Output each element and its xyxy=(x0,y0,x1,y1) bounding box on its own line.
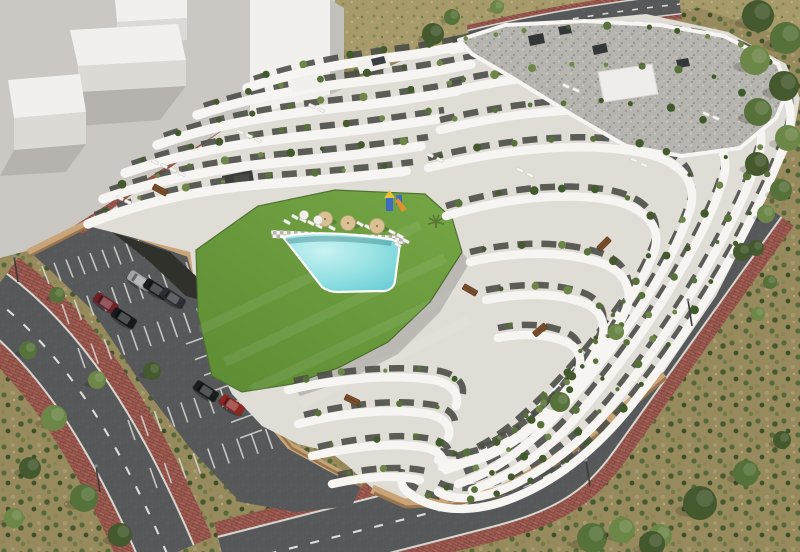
balcony-shrub xyxy=(545,434,552,441)
balcony-shrub xyxy=(287,103,292,108)
balcony-shrub xyxy=(425,108,432,115)
balcony-shrub xyxy=(383,369,387,373)
balcony-shrub xyxy=(521,28,526,33)
massing-block-b-face xyxy=(14,112,86,150)
balcony-shrub xyxy=(407,86,414,93)
balcony-shrub xyxy=(380,46,387,53)
balcony-shrub xyxy=(425,493,431,499)
balcony-shrub xyxy=(188,144,194,150)
balcony-shrub xyxy=(137,196,141,200)
balcony-shrub xyxy=(482,247,487,252)
balcony-shrub xyxy=(662,252,670,260)
balcony-shrub xyxy=(646,312,653,319)
balcony-shrub xyxy=(358,141,365,148)
balcony-shrub xyxy=(342,168,346,172)
balcony-shrub xyxy=(461,77,466,82)
balcony-shrub xyxy=(537,421,544,428)
balcony-shrub xyxy=(561,100,567,106)
balcony-shrub xyxy=(287,149,295,157)
balcony-shrub xyxy=(584,248,591,255)
balcony-shrub xyxy=(598,98,603,103)
balcony-shrub xyxy=(346,51,354,59)
balcony-shrub xyxy=(265,172,272,179)
balcony-shrub xyxy=(597,409,601,413)
aerial-render xyxy=(0,0,800,552)
balcony-shrub xyxy=(572,406,580,414)
balcony-shrub xyxy=(590,136,596,142)
balcony-shrub xyxy=(379,115,385,121)
balcony-shrub xyxy=(596,302,603,309)
balcony-shrub xyxy=(396,400,403,407)
balcony-shrub xyxy=(604,62,609,67)
balcony-shrub xyxy=(708,279,713,284)
balcony-shrub xyxy=(463,449,471,457)
balcony-shrub xyxy=(564,379,570,385)
balcony-shrub xyxy=(155,173,160,178)
balcony-shrub xyxy=(329,443,333,447)
balcony-shrub xyxy=(258,152,264,158)
balcony-shrub xyxy=(634,360,642,368)
balcony-shrub xyxy=(528,102,533,107)
balcony-shrub xyxy=(591,185,599,193)
balcony-shrub xyxy=(539,455,547,463)
balcony-shrub xyxy=(672,310,677,315)
balcony-shrub xyxy=(315,410,322,417)
balcony-shrub xyxy=(140,157,145,162)
balcony-shrub xyxy=(619,404,627,412)
balcony-shrub xyxy=(221,179,225,183)
balcony-shrub xyxy=(262,71,269,78)
balcony-shrub xyxy=(187,163,192,168)
balcony-shrub xyxy=(558,185,566,193)
balcony-shrub xyxy=(679,216,685,222)
balcony-shrub xyxy=(311,169,319,177)
balcony-shrub xyxy=(569,62,574,67)
balcony-shrub xyxy=(182,183,190,191)
balcony-shrub xyxy=(527,478,533,484)
balcony-shrub xyxy=(674,28,680,34)
balcony-shrub xyxy=(452,116,458,122)
balcony-shrub xyxy=(245,88,252,95)
balcony-shrub xyxy=(632,278,640,286)
balcony-shrub xyxy=(523,413,528,418)
balcony-shrub xyxy=(473,144,481,152)
balcony-shrub xyxy=(520,452,528,460)
balcony-shrub xyxy=(249,110,255,116)
balcony-shrub xyxy=(646,253,651,258)
balcony-shrub xyxy=(492,107,498,113)
white-parasol xyxy=(300,211,309,220)
balcony-shrub xyxy=(738,41,744,47)
balcony-shrub xyxy=(417,366,422,371)
balcony-shrub xyxy=(221,156,229,164)
balcony-shrub xyxy=(467,496,475,504)
balcony-shrub xyxy=(535,405,542,412)
balcony-shrub xyxy=(413,433,419,439)
balcony-shrub xyxy=(506,447,511,452)
balcony-shrub xyxy=(452,376,458,382)
balcony-shrub xyxy=(518,242,525,249)
balcony-shrub xyxy=(687,173,691,177)
balcony-shrub xyxy=(609,256,618,265)
balcony-shrub xyxy=(705,34,710,39)
balcony-shrub xyxy=(489,470,495,476)
balcony-shrub xyxy=(508,323,513,328)
balcony-shrub xyxy=(363,69,371,77)
balcony-shrub xyxy=(691,278,697,284)
balcony-shrub xyxy=(638,292,645,299)
balcony-shrub xyxy=(447,80,452,85)
balcony-shrub xyxy=(667,104,675,112)
balcony-shrub xyxy=(621,299,625,303)
balcony-shrub xyxy=(382,163,388,169)
balcony-shrub xyxy=(317,76,324,83)
balcony-shrub xyxy=(699,116,707,124)
balcony-shrub xyxy=(670,273,678,281)
balcony-shrub xyxy=(493,439,500,446)
balcony-shrub xyxy=(401,64,406,69)
balcony-shrub xyxy=(496,190,502,196)
balcony-shrub xyxy=(649,336,656,343)
balcony-shrub xyxy=(435,405,439,409)
balcony-shrub xyxy=(299,60,307,68)
balcony-shrub xyxy=(279,127,285,133)
balcony-shrub xyxy=(214,99,220,105)
balcony-shrub xyxy=(532,282,540,290)
balcony-shrub xyxy=(444,484,450,490)
balcony-shrub xyxy=(216,117,221,122)
balcony-shrub xyxy=(493,490,499,496)
balcony-shrub xyxy=(712,74,717,79)
balcony-shrub xyxy=(437,60,443,66)
balcony-shrub xyxy=(565,459,569,463)
balcony-shrub xyxy=(584,440,590,446)
balcony-shrub xyxy=(497,435,501,439)
balcony-shrub xyxy=(317,96,324,103)
balcony-shrub xyxy=(463,36,468,41)
balcony-shrub xyxy=(215,138,223,146)
balcony-shrub xyxy=(399,137,407,145)
balcony-shrub xyxy=(175,130,181,136)
balcony-shrub xyxy=(511,427,517,433)
balcony-shrub xyxy=(511,140,518,147)
balcony-shrub xyxy=(498,286,503,291)
balcony-shrub xyxy=(473,465,479,471)
balcony-shrub xyxy=(738,89,746,97)
balcony-shrub xyxy=(611,313,616,318)
balcony-shrub xyxy=(320,146,325,151)
balcony-shrub xyxy=(628,101,633,106)
balcony-shrub xyxy=(528,64,536,72)
balcony-shrub xyxy=(490,70,499,79)
white-parasol xyxy=(314,216,323,225)
balcony-shrub xyxy=(530,186,539,195)
balcony-shrub xyxy=(566,386,573,393)
balcony-shrub xyxy=(373,436,380,443)
balcony-shrub xyxy=(623,339,630,346)
balcony-shrub xyxy=(690,306,699,315)
balcony-shrub xyxy=(343,120,350,127)
balcony-shrub xyxy=(748,211,752,215)
balcony-shrub xyxy=(548,137,554,143)
balcony-shrub xyxy=(508,473,515,480)
balcony-shrub xyxy=(359,93,367,101)
balcony-shrub xyxy=(346,470,351,475)
massing-block-a xyxy=(70,24,186,66)
balcony-shrub xyxy=(600,376,604,380)
massing-block-b xyxy=(8,74,86,118)
balcony-shrub xyxy=(563,286,572,295)
balcony-shrub xyxy=(757,144,763,150)
balcony-shrub xyxy=(593,358,599,364)
balcony-shrub xyxy=(303,376,310,383)
render-viewport xyxy=(0,0,800,552)
balcony-shrub xyxy=(635,139,643,147)
balcony-shrub xyxy=(471,486,478,493)
balcony-shrub xyxy=(118,180,127,189)
balcony-shrub xyxy=(578,349,582,353)
balcony-shrub xyxy=(103,207,108,212)
balcony-shrub xyxy=(647,25,652,30)
balcony-shrub xyxy=(715,240,719,244)
balcony-shrub xyxy=(724,155,728,159)
balcony-shrub xyxy=(540,392,548,400)
balcony-shrub xyxy=(646,212,654,220)
balcony-shrub xyxy=(568,372,577,381)
balcony-shrub xyxy=(580,364,585,369)
balcony-shrub xyxy=(685,245,691,251)
balcony-shrub xyxy=(674,65,682,73)
balcony-shrub xyxy=(338,368,345,375)
balcony-shrub xyxy=(566,25,570,29)
balcony-shrub xyxy=(574,428,582,436)
balcony-shrub xyxy=(615,387,619,391)
balcony-shrub xyxy=(724,214,732,222)
balcony-shrub xyxy=(279,83,284,88)
balcony-shrub xyxy=(493,32,498,37)
balcony-shrub xyxy=(638,62,645,69)
balcony-shrub xyxy=(663,148,671,156)
balcony-shrub xyxy=(303,124,310,131)
balcony-shrub xyxy=(603,22,611,30)
balcony-shrub xyxy=(452,451,457,456)
balcony-shrub xyxy=(435,439,443,447)
balcony-shrub xyxy=(593,339,598,344)
balcony-shrub xyxy=(700,209,708,217)
balcony-shrub xyxy=(380,465,387,472)
balcony-shrub xyxy=(666,342,671,347)
balcony-shrub xyxy=(639,382,644,387)
balcony-shrub xyxy=(527,416,535,424)
balcony-shrub xyxy=(558,241,566,249)
balcony-shrub xyxy=(625,195,630,200)
balcony-shrub xyxy=(716,182,723,189)
balcony-shrub xyxy=(455,199,463,207)
